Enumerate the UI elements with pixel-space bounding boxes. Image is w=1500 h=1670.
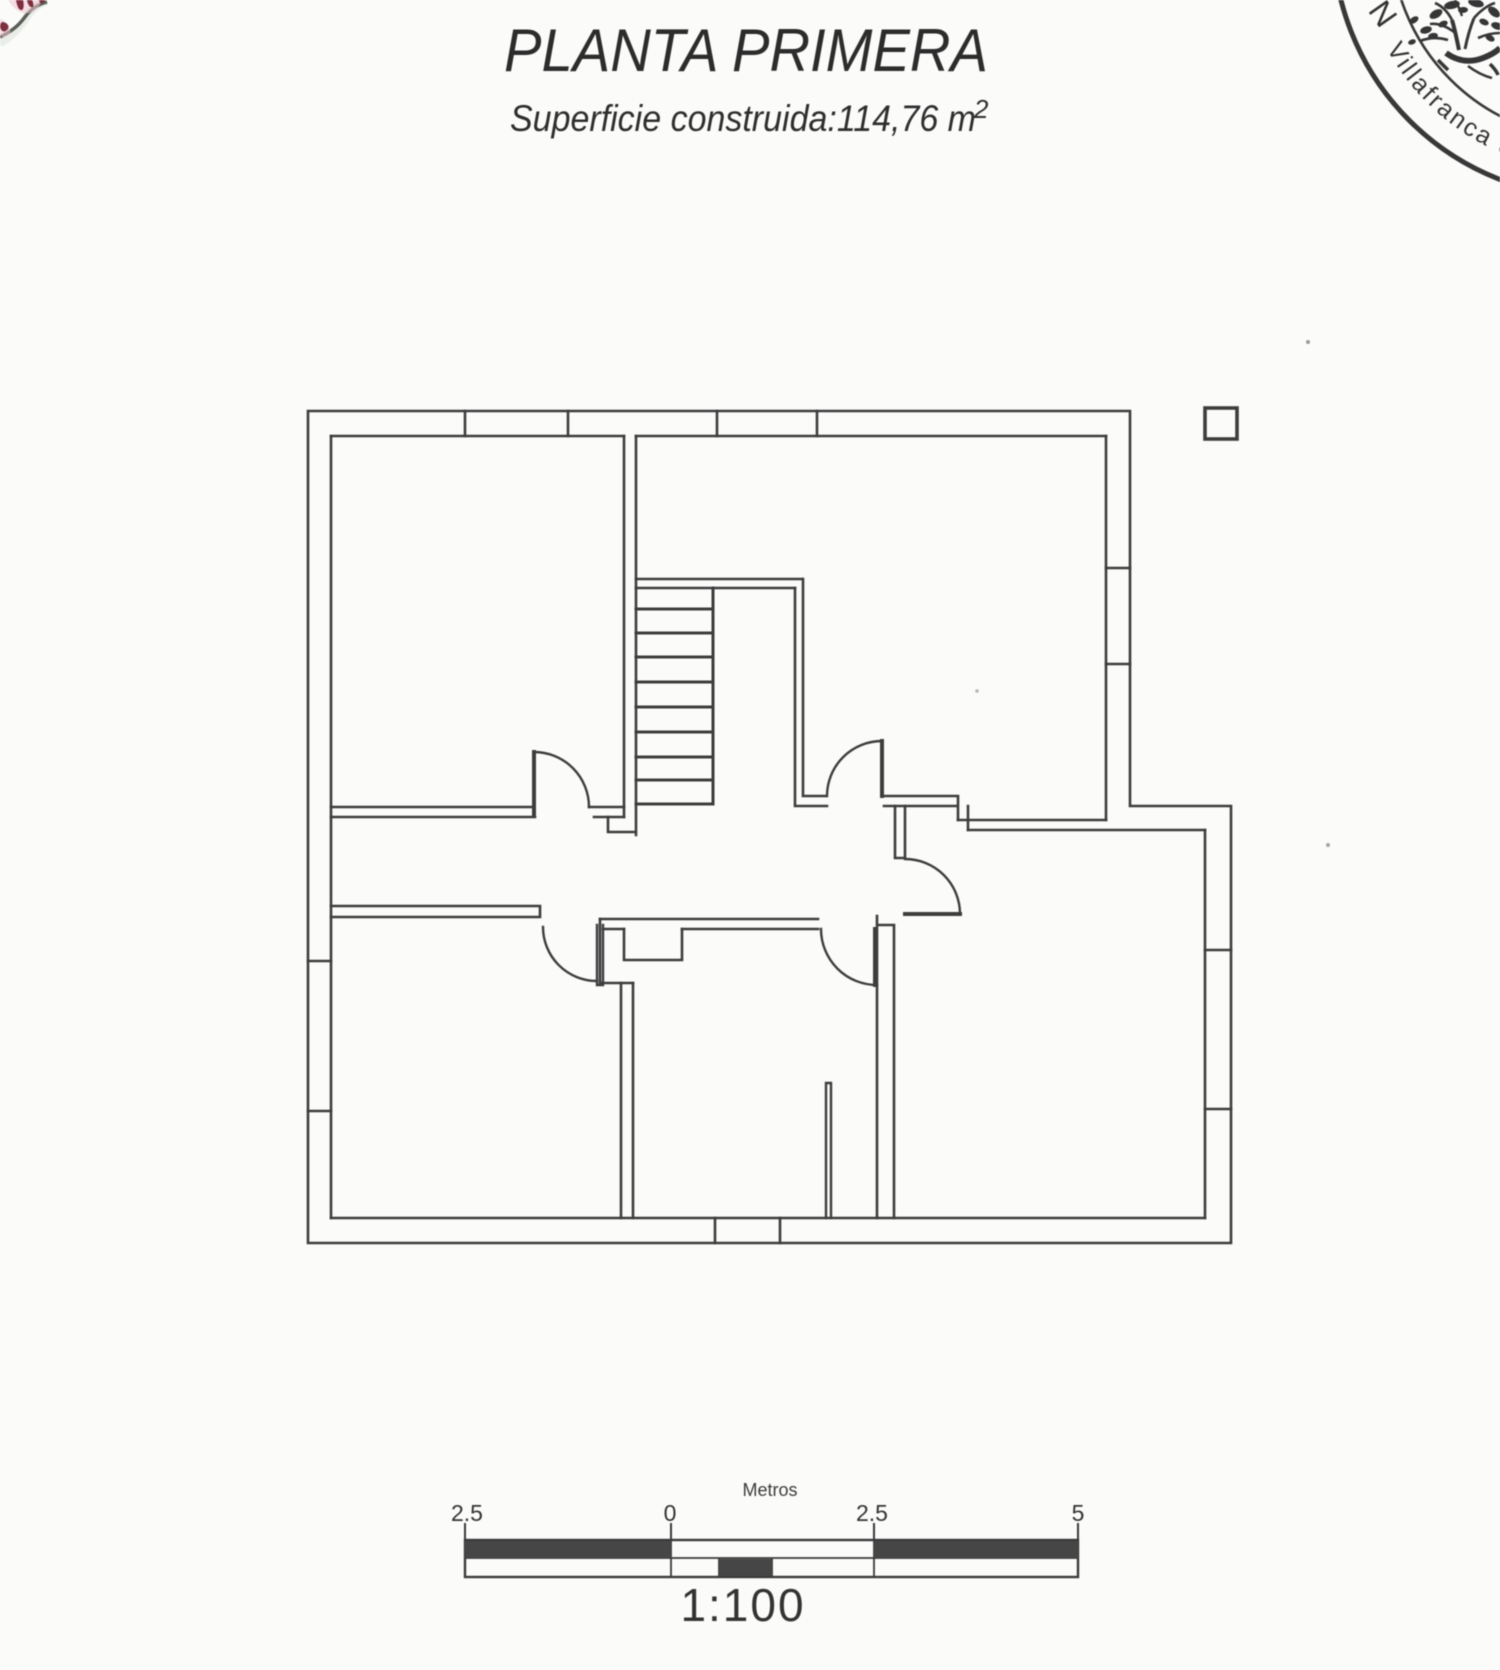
svg-text:2: 2 (973, 94, 989, 124)
svg-text:5: 5 (1072, 1500, 1085, 1526)
svg-text:N: N (1362, 0, 1405, 33)
svg-text:2.5: 2.5 (856, 1500, 888, 1526)
svg-text:PLANTA PRIMERA: PLANTA PRIMERA (504, 17, 988, 84)
svg-text:0: 0 (664, 1500, 677, 1526)
svg-text:Metros: Metros (742, 1480, 797, 1500)
svg-text:1:100: 1:100 (680, 1579, 805, 1631)
svg-text:Superficie construida:114,76 m: Superficie construida:114,76 m (510, 98, 976, 139)
svg-text:2.5: 2.5 (451, 1500, 483, 1526)
